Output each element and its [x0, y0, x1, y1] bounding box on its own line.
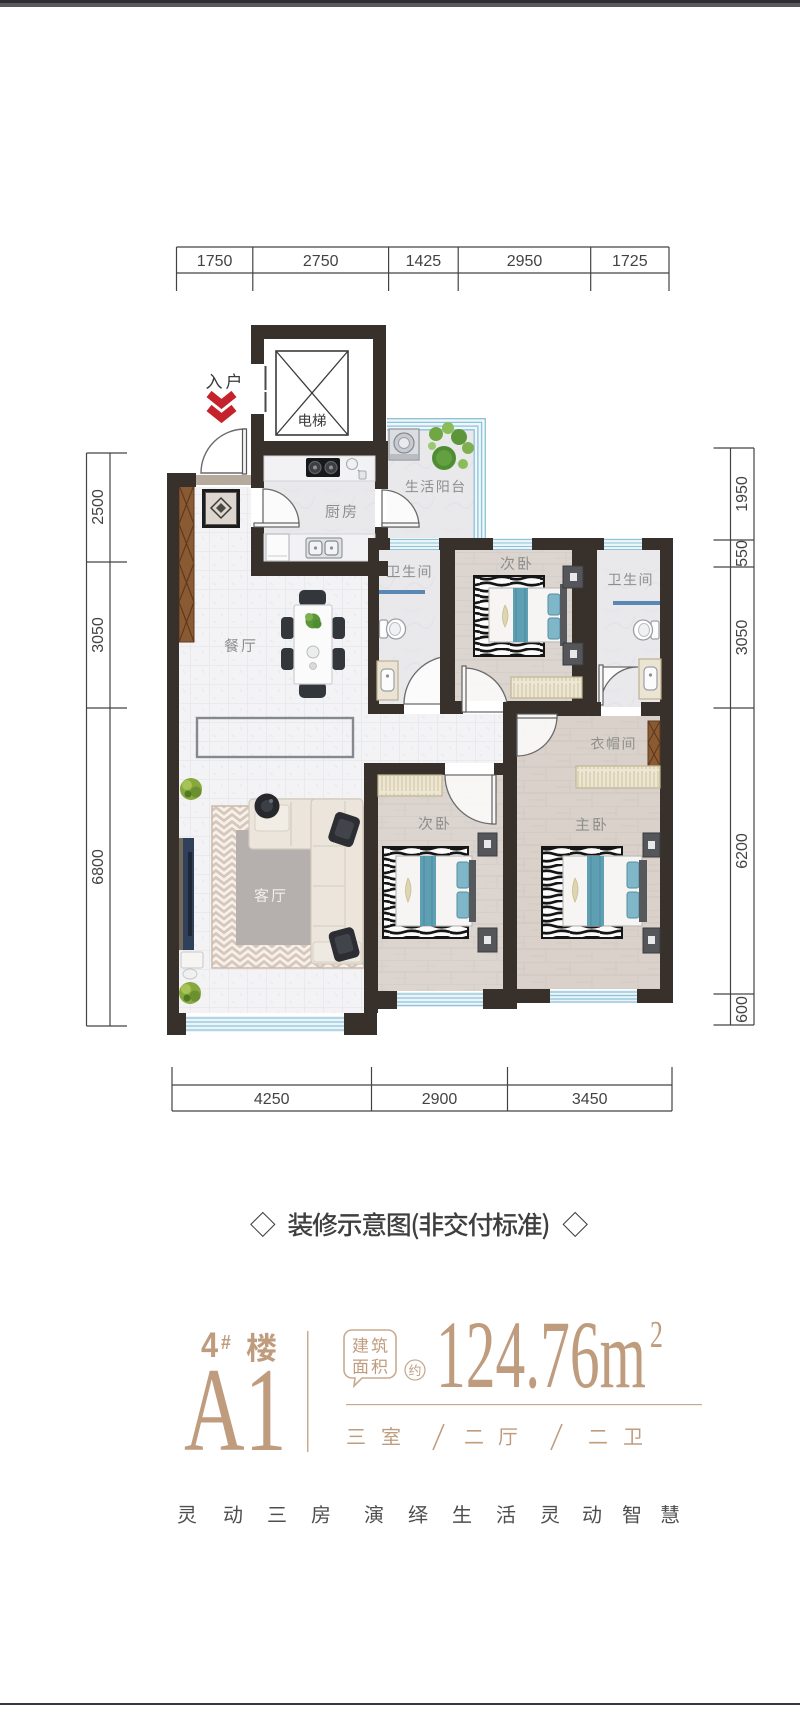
svg-text:600: 600: [734, 996, 751, 1023]
svg-text:1950: 1950: [734, 476, 751, 512]
svg-text:124.76m: 124.76m: [436, 1303, 646, 1409]
svg-text:2500: 2500: [90, 489, 107, 525]
svg-text:3450: 3450: [572, 1091, 608, 1108]
svg-text:3050: 3050: [734, 620, 751, 656]
svg-text:1425: 1425: [406, 253, 442, 270]
svg-text:6800: 6800: [90, 849, 107, 885]
svg-text:2950: 2950: [507, 253, 543, 270]
svg-text:2900: 2900: [422, 1091, 458, 1108]
svg-text:1725: 1725: [612, 253, 648, 270]
svg-text:550: 550: [734, 540, 751, 567]
svg-text:2750: 2750: [303, 253, 339, 270]
svg-text:6200: 6200: [734, 833, 751, 869]
svg-text:3050: 3050: [90, 617, 107, 653]
svg-text:1750: 1750: [197, 253, 233, 270]
svg-text:4250: 4250: [254, 1091, 290, 1108]
svg-text:2: 2: [650, 1314, 663, 1356]
svg-text:A1: A1: [184, 1345, 287, 1477]
